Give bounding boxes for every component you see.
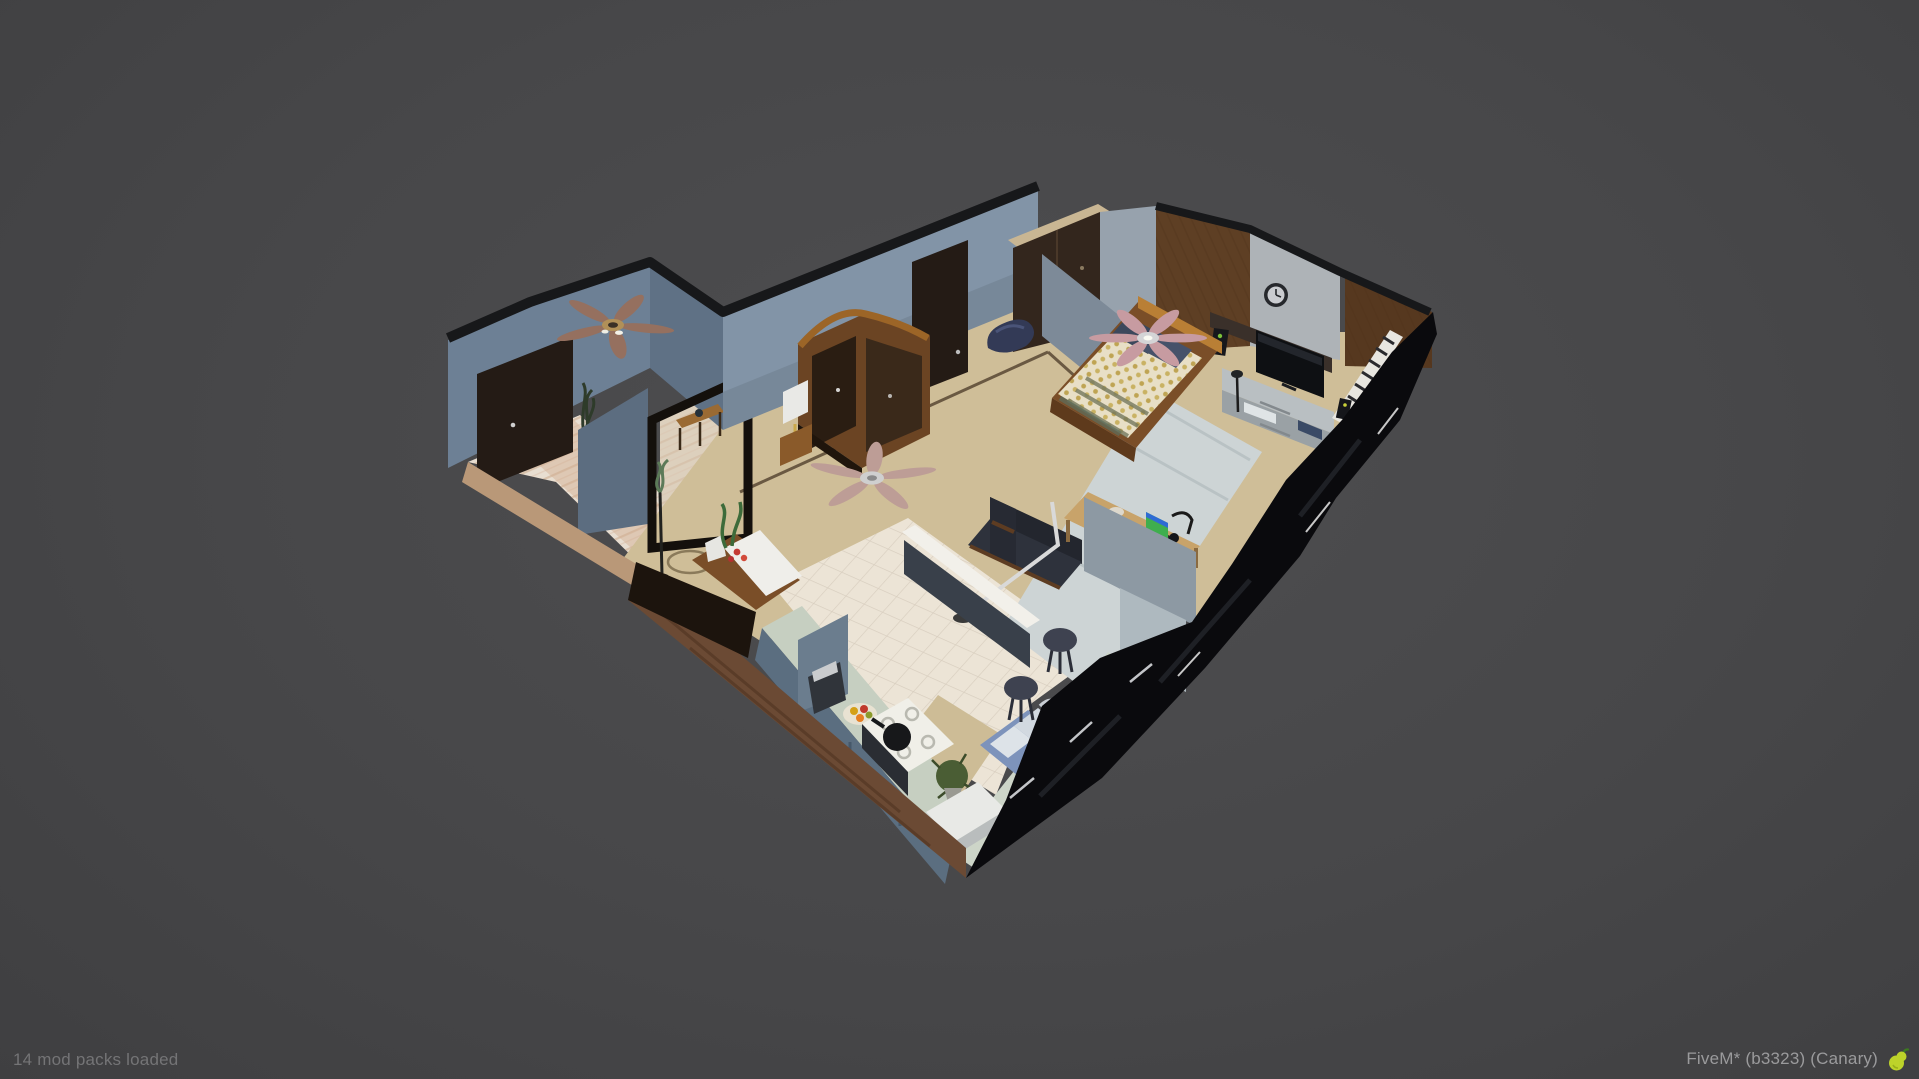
fivem-version-label: FiveM* (b3323) (Canary) bbox=[1686, 1049, 1878, 1069]
table-bowl bbox=[695, 409, 703, 417]
bedroom-door-knob bbox=[956, 350, 960, 354]
wall-clock bbox=[1264, 283, 1288, 307]
apartment-3d-viewport[interactable] bbox=[0, 0, 1919, 1079]
apartment-model[interactable] bbox=[448, 186, 1437, 884]
entry-door-knob bbox=[511, 423, 516, 428]
fivem-game-window: 14 mod packs loaded FiveM* (b3323) (Cana… bbox=[0, 0, 1919, 1079]
fivem-pear-icon bbox=[1885, 1046, 1911, 1072]
closet-knob bbox=[1080, 266, 1084, 270]
hall-wall-panel bbox=[578, 388, 648, 535]
mod-packs-status: 14 mod packs loaded bbox=[13, 1050, 178, 1070]
fivem-version-area: FiveM* (b3323) (Canary) bbox=[1686, 1046, 1911, 1072]
